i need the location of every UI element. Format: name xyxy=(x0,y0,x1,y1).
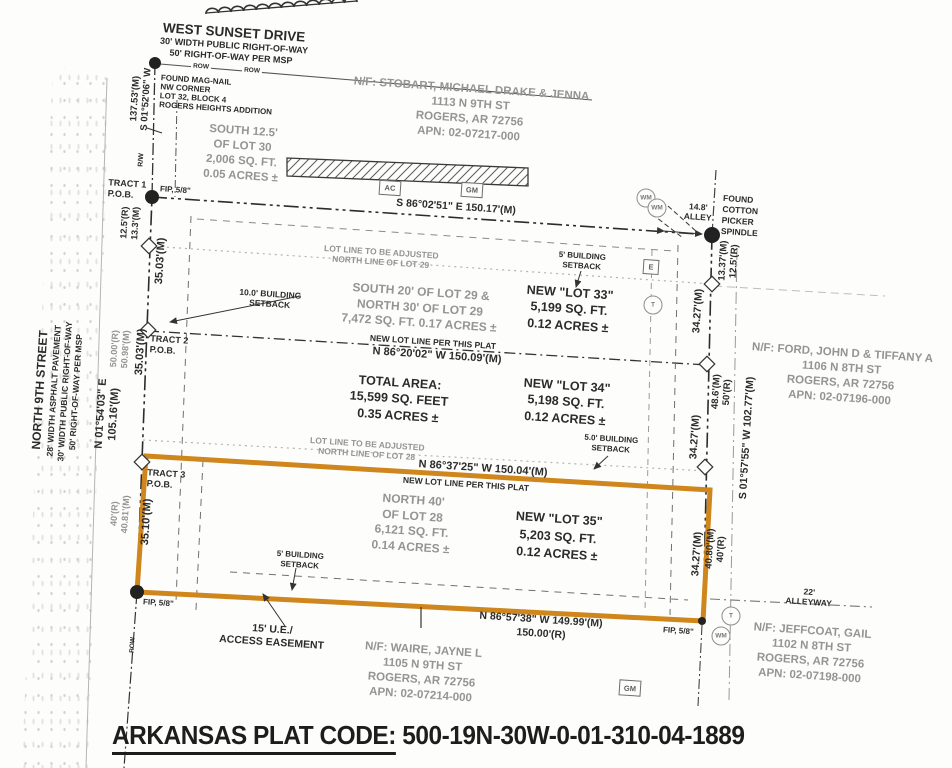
found-mag-nail-note: FOUND MAG-NAIL NW CORNER LOT 32, BLOCK 4… xyxy=(159,74,274,117)
lot28-area-block: NORTH 40' OF LOT 28 6,121 SQ. FT. 0.14 A… xyxy=(371,490,453,557)
neighbor-jeffcoat: N/F: JEFFCOAT, GAIL 1102 N 8TH ST ROGERS… xyxy=(750,620,872,687)
gas-meter-symbol-2: GM xyxy=(618,679,641,696)
telephone-symbol-1: T xyxy=(644,296,663,315)
setback-5-mid-label: 5.0' BUILDING SETBACK xyxy=(583,433,638,456)
scalloped-tree-line xyxy=(206,0,357,14)
dim-text: 50'(R) xyxy=(721,375,735,411)
symbol-text: E xyxy=(648,262,654,271)
setback-line-south xyxy=(230,572,688,600)
cotton-spindle-monument xyxy=(704,227,720,243)
electric-box-symbol: E xyxy=(643,259,660,275)
west-main-bearing: N 01°54'03" E 105.16'(M) xyxy=(93,378,124,450)
note-line: SPINDLE xyxy=(721,226,758,239)
new-lot35-block: NEW "LOT 35" 5,203 SQ. FT. 0.12 ACRES ± xyxy=(513,508,603,566)
fip-label-sw: FIP, 5/8" xyxy=(143,597,174,609)
symbol-text: T xyxy=(651,302,655,309)
dim-text: 13.3'(M) xyxy=(129,206,142,240)
dim-west-1: 12.5'(R) 13.3'(M) xyxy=(118,206,142,240)
east-row-line xyxy=(729,248,737,700)
water-meter-symbol-2: WM xyxy=(648,199,667,218)
setback5-bottom-leader xyxy=(292,568,296,590)
tract1-pob-label: TRACT 1 P.O.B. xyxy=(107,177,146,201)
tract3-pob-label: TRACT 3 P.O.B. xyxy=(146,467,185,491)
lot30-area-block: SOUTH 12.5' OF LOT 30 2,006 SQ. FT. 0.05… xyxy=(203,122,282,187)
dim-east-5: 40.80'(M) 40'(R) xyxy=(703,528,728,570)
fip-monument-se xyxy=(698,617,706,625)
fip-label-se: FIP, 5/8" xyxy=(663,625,694,637)
dim-west-5: 40'(R) 40.81'(M) xyxy=(108,494,132,533)
tract2-pob-label: TRACT 2 P.O.B. xyxy=(149,333,188,357)
lot-line-extension-east xyxy=(714,286,885,296)
alleyway-label: 22' ALLEYWAY xyxy=(785,585,833,608)
dim-east-1: 13.37'(M) 12.5'(R) xyxy=(716,240,741,282)
dim-west-3: 50.00'(R) 50.98'(M) xyxy=(108,329,132,368)
hatched-building xyxy=(287,158,528,186)
fip-monument-nw xyxy=(145,190,159,204)
water-meter-symbol-3: WM xyxy=(712,627,731,646)
symbol-text: GM xyxy=(624,683,637,693)
plat-survey-page: WEST SUNSET DRIVE 30' WIDTH PUBLIC RIGHT… xyxy=(0,0,952,768)
setback5-mid-leader xyxy=(594,456,608,469)
neighbor-waire: N/F: WAIRE, JAYNE L 1105 N 9TH ST ROGERS… xyxy=(362,639,483,706)
telephone-symbol-2: T xyxy=(722,607,741,626)
neighbor-ford: N/F: FORD, JOHN D & TIFFANY A 1106 N 8TH… xyxy=(748,340,933,412)
setback-line-west xyxy=(176,216,191,602)
plat-code-title: ARKANSAS PLAT CODE: 500-19N-30W-0-01-310… xyxy=(112,720,745,751)
setback-line-east xyxy=(670,245,678,615)
total-area-block: TOTAL AREA: 15,599 SQ. FEET 0.35 ACRES ± xyxy=(348,371,450,426)
setback-10-label: 10.0' BUILDING SETBACK xyxy=(238,287,301,311)
lot30-west-line xyxy=(175,100,177,197)
setback-5-bottom-label: 5' BUILDING SETBACK xyxy=(276,549,324,571)
ac-unit-symbol: AC xyxy=(379,180,402,196)
symbol-text: WM xyxy=(651,205,663,212)
dim-east-3: 48.6'(M) 50'(R) xyxy=(710,374,735,410)
note-line: ALLEY xyxy=(683,211,711,223)
west-upper-bearing: 137.53'(M) S 01°52'06" W xyxy=(128,67,155,131)
fip-label-nw: FIP, 5/8" xyxy=(160,184,191,196)
symbol-text: GM xyxy=(466,185,479,195)
cotton-spindle-note: FOUND COTTON PICKER SPINDLE xyxy=(721,193,761,240)
new-lot33-block: NEW "LOT 33" 5,199 SQ. FT. 0.12 ACRES ± xyxy=(524,282,614,336)
plat-code-label: ARKANSAS PLAT CODE: xyxy=(112,720,396,755)
alley-tie-line-2 xyxy=(652,214,683,238)
row-label-1: ROW xyxy=(191,62,211,71)
east-line-lower xyxy=(698,625,702,706)
setback-5-top-label: 5' BUILDING SETBACK xyxy=(558,250,606,272)
symbol-text: AC xyxy=(384,183,395,193)
symbol-text: WM xyxy=(715,633,727,640)
street-name-north-9th: NORTH 9TH STREET 28' WIDTH ASPHALT PAVEM… xyxy=(28,320,85,463)
fip-monument-sw xyxy=(130,585,144,599)
easement-line-west xyxy=(196,460,203,610)
plat-code-value: 500-19N-30W-0-01-310-04-1889 xyxy=(402,720,744,750)
gas-meter-symbol-1: GM xyxy=(461,182,484,198)
row-label-2: ROW xyxy=(242,66,262,75)
row-label-vertical: ROW xyxy=(129,637,138,653)
setback-line-north xyxy=(197,219,674,251)
symbol-text: T xyxy=(729,613,733,620)
new-lot34-block: NEW "LOT 34" 5,198 SQ. FT. 0.12 ACRES ± xyxy=(521,375,611,429)
alley-width-label: 14.8' ALLEY xyxy=(683,201,712,223)
rw-label: R/W xyxy=(137,151,146,169)
